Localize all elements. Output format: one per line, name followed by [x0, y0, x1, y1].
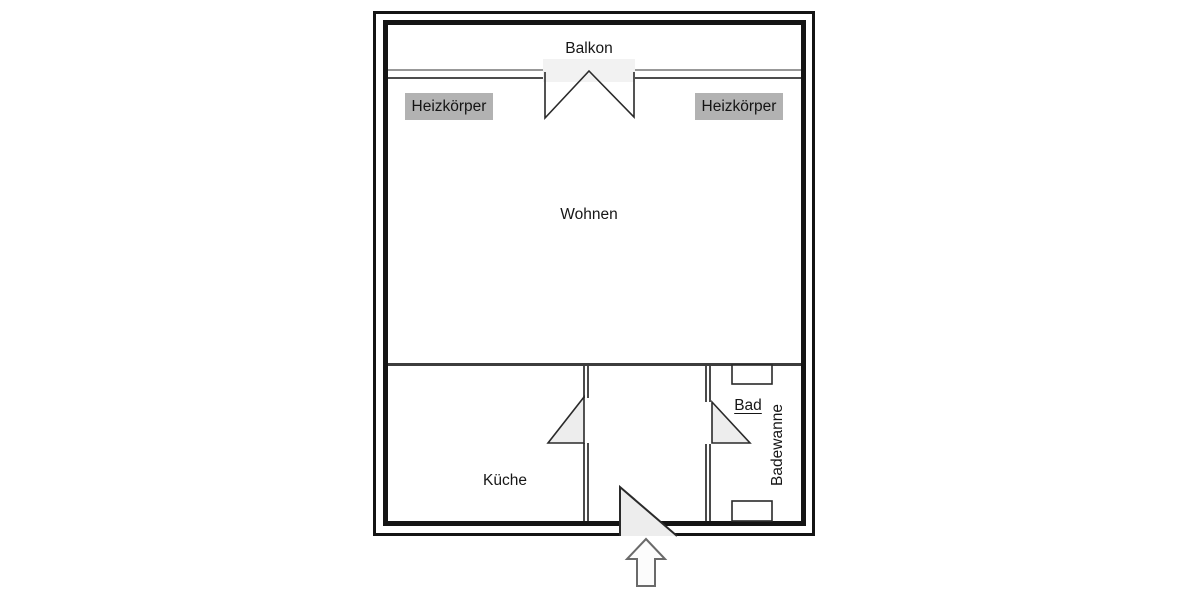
bathtub-label: Badewanne [768, 390, 786, 500]
radiator-right-label: Heizkörper [695, 93, 783, 120]
balcony-window-left [388, 69, 545, 79]
kitchen-label: Küche [455, 471, 555, 490]
balcony-window-right [634, 69, 801, 79]
floorplan-canvas: Balkon Heizkörper Heizkörper Wohnen Küch… [0, 0, 1200, 600]
room-divider-wall [388, 363, 801, 366]
bath-wall-upper [705, 366, 711, 402]
bath-wall-lower [705, 444, 711, 521]
kitchen-wall-upper [583, 366, 589, 398]
balcony-label: Balkon [539, 39, 639, 58]
radiator-left-label: Heizkörper [405, 93, 493, 120]
entrance-arrow-icon [627, 539, 665, 586]
kitchen-wall-lower [583, 443, 589, 521]
living-room-label: Wohnen [539, 205, 639, 224]
